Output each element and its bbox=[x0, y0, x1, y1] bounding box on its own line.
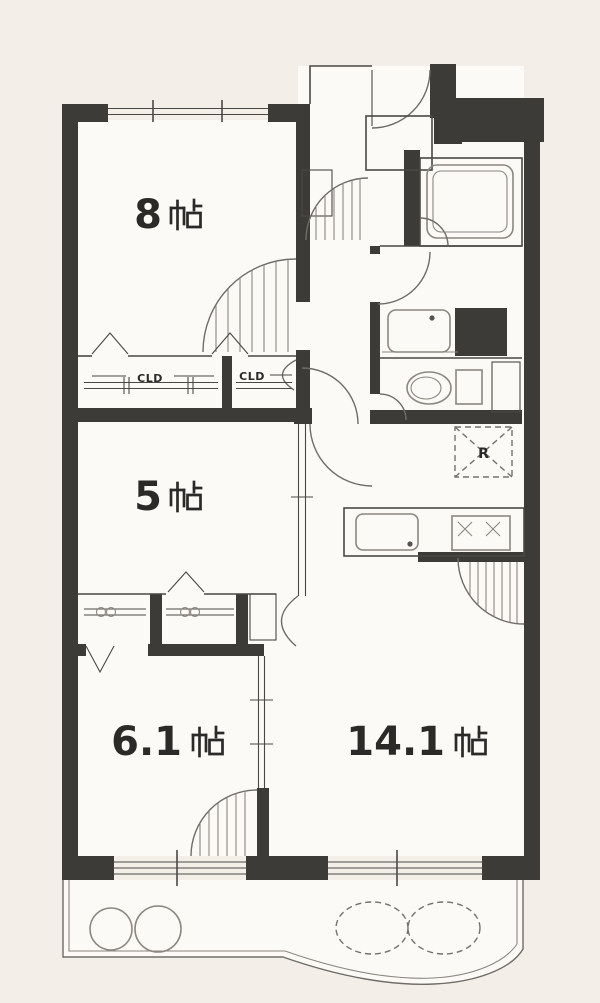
closet-label-upper-right: CLD bbox=[239, 370, 265, 383]
floor-plan: CLD CLD bbox=[0, 0, 600, 1003]
refrigerator-label: R bbox=[478, 446, 489, 462]
closet-label-upper-left: CLD bbox=[137, 372, 163, 385]
room-size-number: 5 bbox=[134, 474, 162, 520]
room-size-number: 8 bbox=[134, 192, 162, 238]
room-size-number: 14.1 bbox=[346, 719, 445, 765]
window-top-bedroom bbox=[108, 100, 268, 122]
room-size-number: 6.1 bbox=[111, 719, 182, 765]
room-floor-fills bbox=[63, 66, 524, 984]
